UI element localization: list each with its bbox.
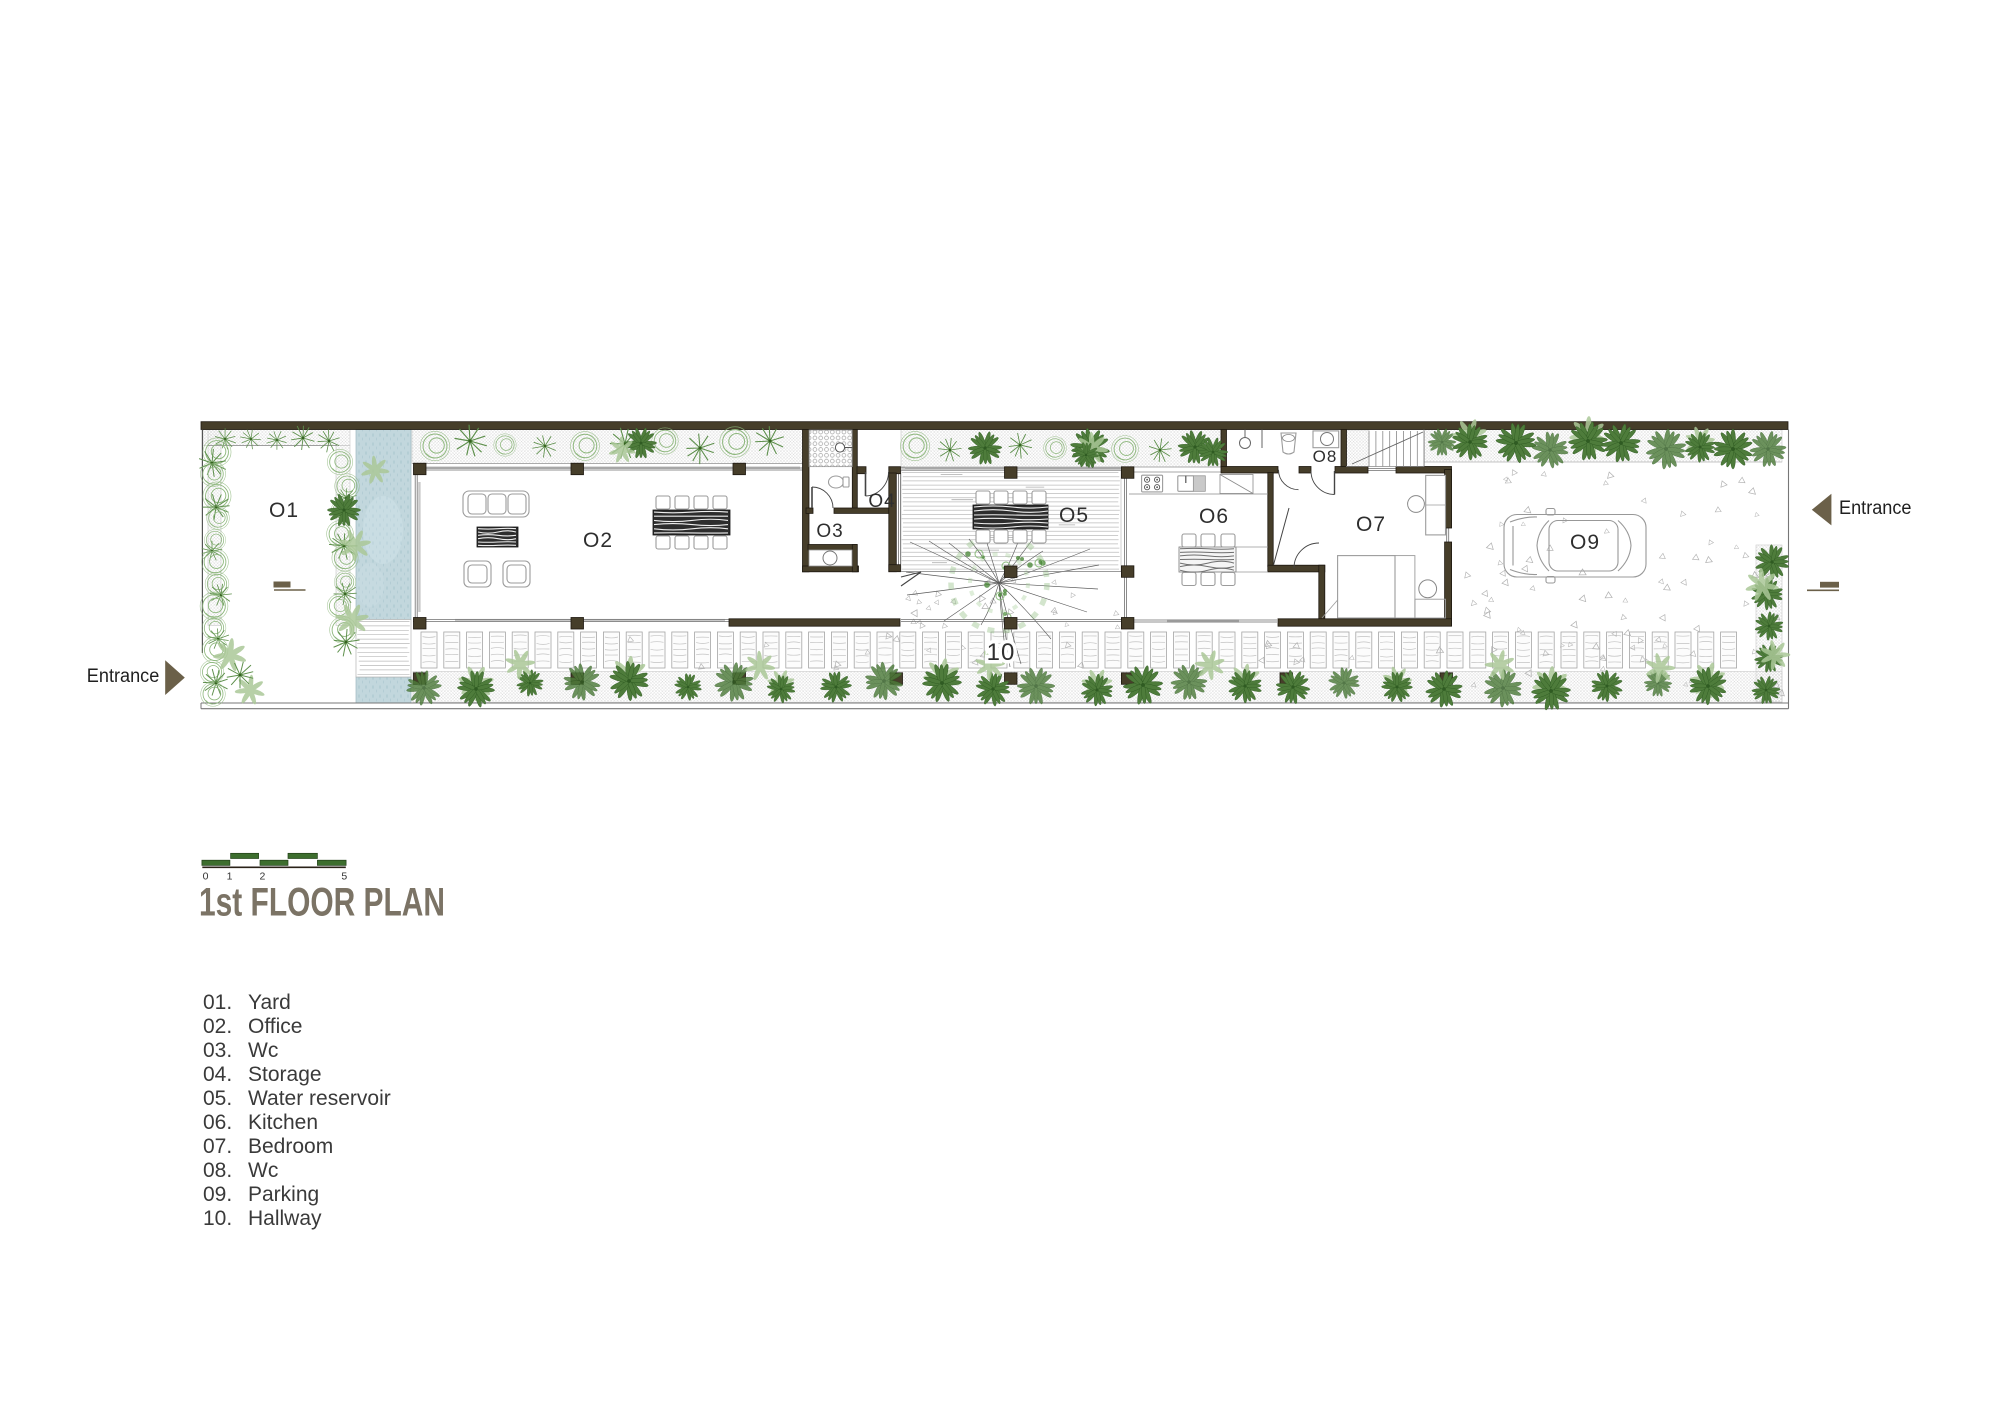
svg-text:Entrance: Entrance xyxy=(1839,498,1912,519)
svg-text:10.: 10. xyxy=(203,1207,232,1230)
svg-text:1st FLOOR PLAN: 1st FLOOR PLAN xyxy=(199,881,445,925)
svg-text:O7: O7 xyxy=(1356,513,1386,536)
svg-text:O6: O6 xyxy=(1199,505,1229,528)
svg-text:Wc: Wc xyxy=(248,1039,278,1062)
svg-text:09.: 09. xyxy=(203,1183,232,1206)
svg-text:Storage: Storage xyxy=(248,1063,322,1086)
svg-text:Wc: Wc xyxy=(248,1159,278,1182)
svg-text:08.: 08. xyxy=(203,1159,232,1182)
svg-text:O9: O9 xyxy=(1570,531,1600,554)
svg-text:05.: 05. xyxy=(203,1087,232,1110)
svg-text:Water reservoir: Water reservoir xyxy=(248,1087,391,1110)
svg-text:Entrance: Entrance xyxy=(87,666,160,687)
svg-text:06.: 06. xyxy=(203,1111,232,1134)
svg-text:O8: O8 xyxy=(1313,447,1338,466)
svg-text:O5: O5 xyxy=(1059,504,1089,527)
svg-text:O2: O2 xyxy=(583,529,613,552)
svg-text:Parking: Parking xyxy=(248,1183,319,1206)
svg-text:Office: Office xyxy=(248,1015,302,1038)
svg-text:07.: 07. xyxy=(203,1135,232,1158)
svg-text:O3: O3 xyxy=(816,521,843,542)
svg-text:Hallway: Hallway xyxy=(248,1207,322,1230)
svg-text:02.: 02. xyxy=(203,1015,232,1038)
svg-text:Yard: Yard xyxy=(248,991,291,1014)
svg-text:O1: O1 xyxy=(269,499,299,522)
svg-text:O4: O4 xyxy=(868,491,895,512)
svg-text:Kitchen: Kitchen xyxy=(248,1111,318,1134)
svg-text:03.: 03. xyxy=(203,1039,232,1062)
svg-text:04.: 04. xyxy=(203,1063,232,1086)
svg-text:10: 10 xyxy=(987,639,1016,666)
svg-text:Bedroom: Bedroom xyxy=(248,1135,333,1158)
svg-text:01.: 01. xyxy=(203,991,232,1014)
